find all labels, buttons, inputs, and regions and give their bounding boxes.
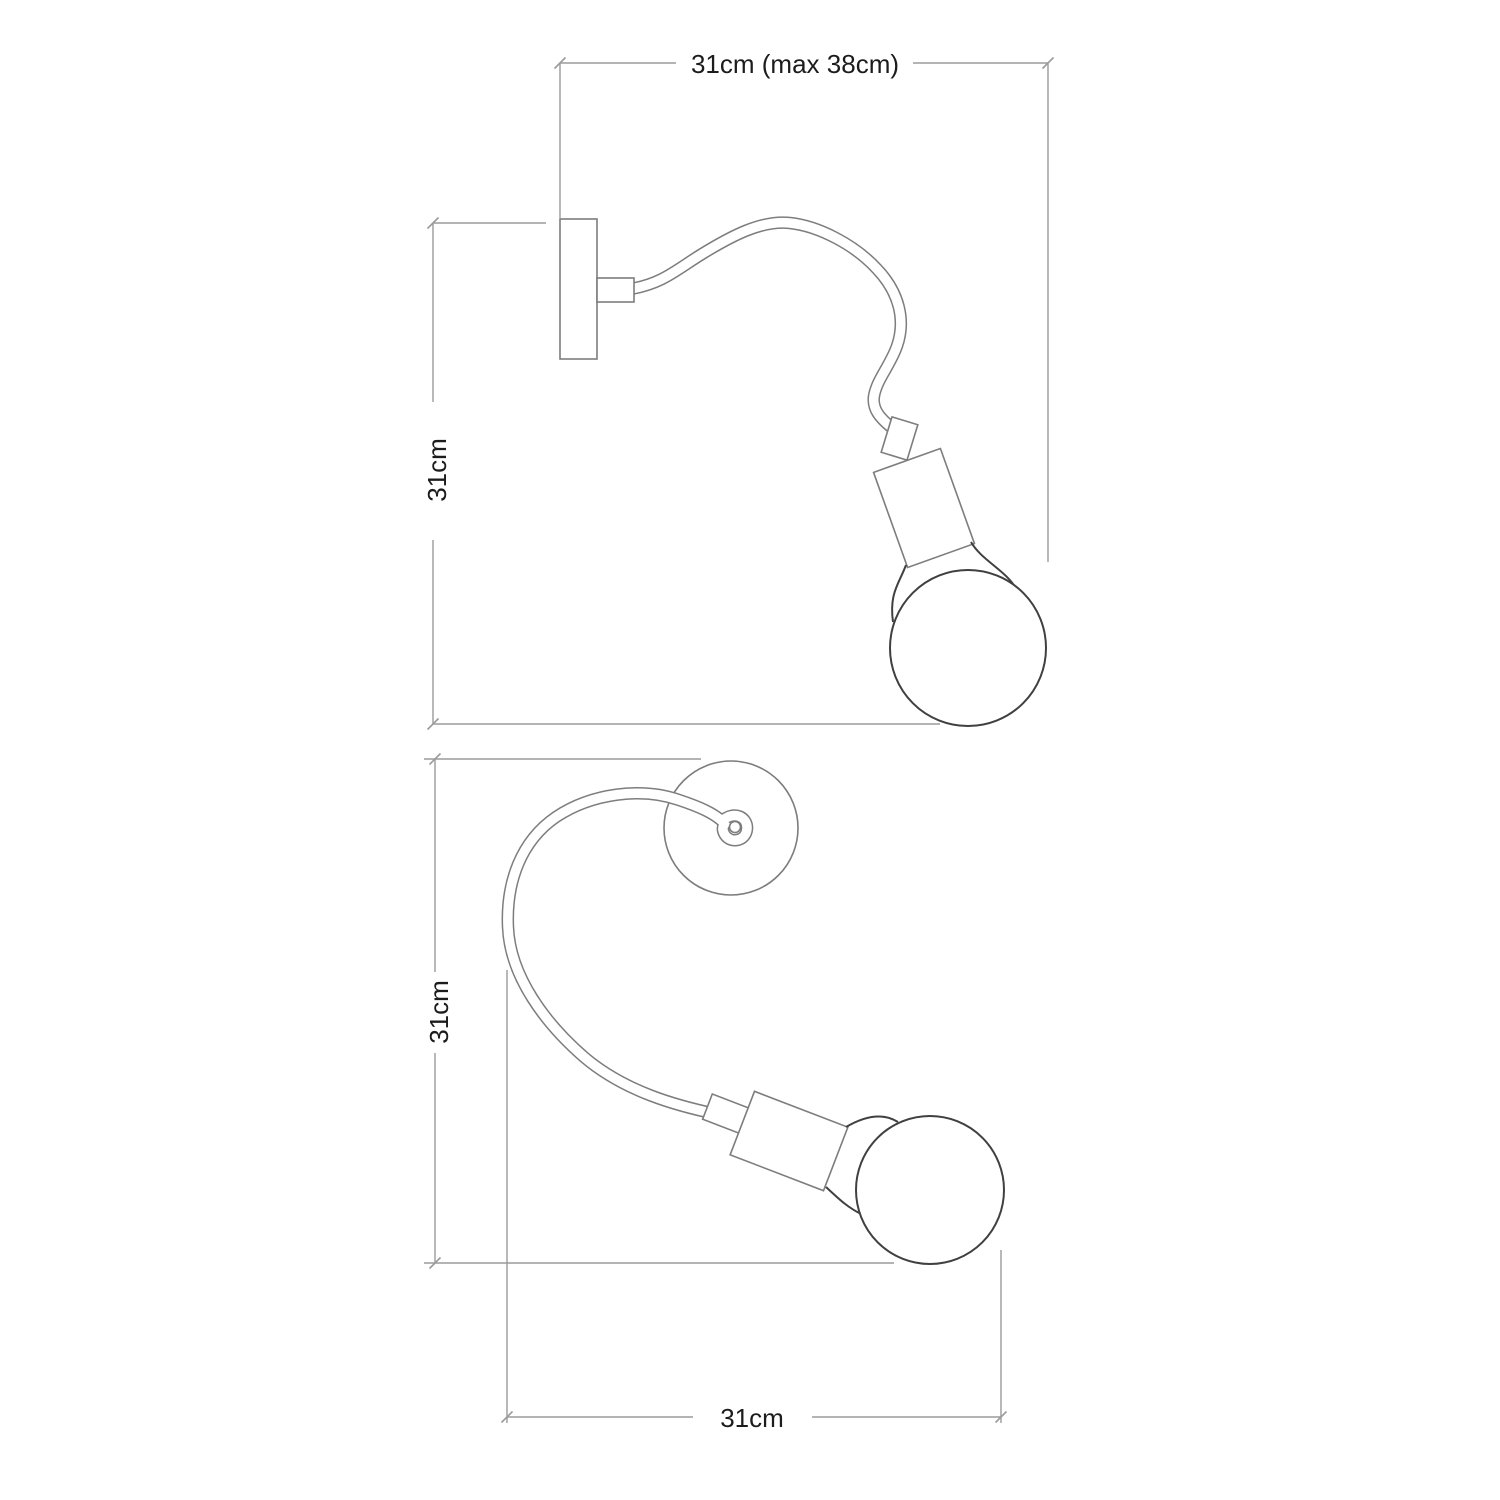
- top-view-height-label: 31cm: [424, 980, 454, 1044]
- side-view-width-label: 31cm (max 38cm): [691, 49, 899, 79]
- side-view-height-label: 31cm: [422, 438, 452, 502]
- light-bulb: [890, 570, 1046, 726]
- arm-tip-hook: [730, 822, 741, 833]
- mounting-stem: [597, 278, 634, 302]
- technical-drawing-canvas: 31cm (max 38cm) 31cm: [0, 0, 1500, 1500]
- drawing-page: 31cm (max 38cm) 31cm: [0, 0, 1500, 1500]
- top-view-width-label: 31cm: [720, 1403, 784, 1433]
- wall-plate: [560, 219, 597, 359]
- light-bulb: [856, 1116, 1004, 1264]
